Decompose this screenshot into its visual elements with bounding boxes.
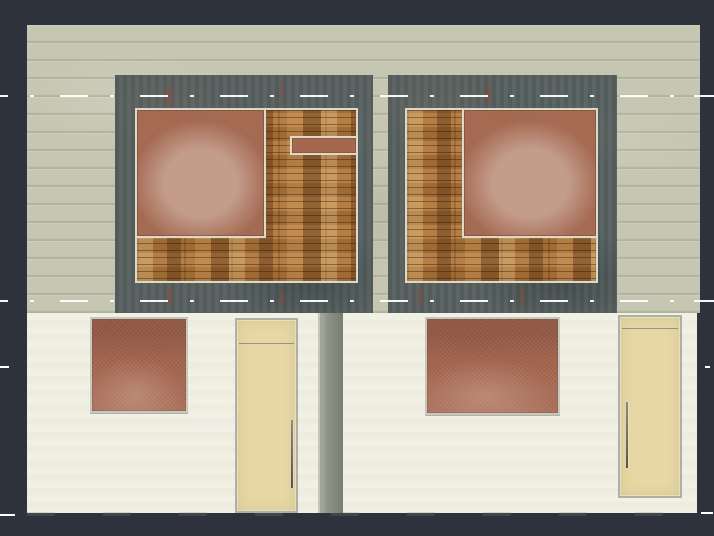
brick-window-right bbox=[425, 317, 560, 415]
wood-cladding-left bbox=[135, 108, 358, 283]
masonry-square-right bbox=[462, 108, 598, 238]
gable-panel-left bbox=[115, 75, 373, 313]
downpipe bbox=[318, 313, 343, 513]
stain-mark bbox=[520, 285, 524, 311]
stain-mark bbox=[280, 81, 284, 105]
stain-mark bbox=[418, 287, 422, 309]
cad-viewport[interactable] bbox=[0, 0, 714, 536]
entry-door-right bbox=[618, 315, 682, 498]
entry-door-left bbox=[235, 318, 298, 513]
door-handle bbox=[626, 402, 628, 468]
brick-window-left bbox=[90, 317, 188, 413]
ground-shadow bbox=[27, 512, 697, 516]
level-tick bbox=[701, 512, 713, 514]
level-tick bbox=[705, 366, 710, 368]
stain-mark bbox=[280, 287, 284, 311]
level-tick bbox=[0, 366, 9, 368]
door-transom-line bbox=[622, 328, 678, 329]
door-handle bbox=[291, 420, 293, 488]
stain-mark bbox=[167, 285, 172, 311]
gable-panel-right bbox=[388, 75, 617, 313]
masonry-square-left bbox=[135, 108, 266, 238]
transom-opening bbox=[290, 136, 358, 155]
level-line-lower bbox=[0, 300, 714, 302]
level-line-upper bbox=[0, 95, 714, 97]
level-tick bbox=[0, 514, 15, 516]
wood-cladding-right bbox=[405, 108, 598, 283]
door-transom-line bbox=[239, 343, 294, 344]
